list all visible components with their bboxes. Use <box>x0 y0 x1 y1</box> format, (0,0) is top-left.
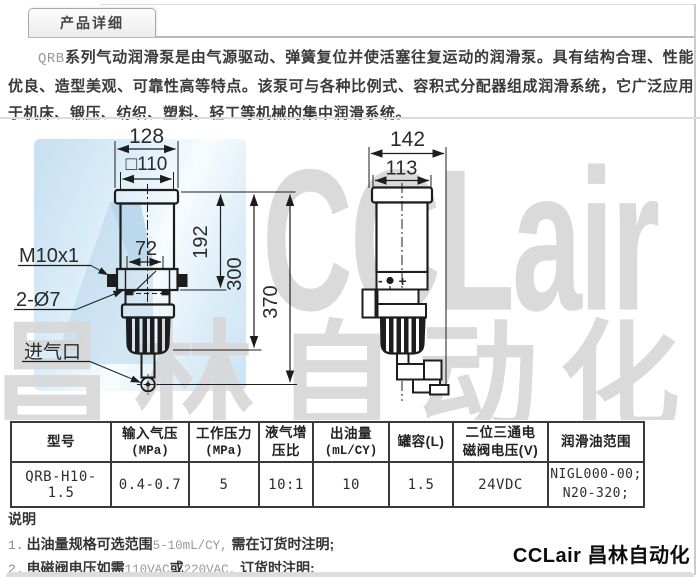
label-holes: 2-Ø7 <box>16 289 60 311</box>
leader-inlet <box>90 362 141 383</box>
dim-300: 300 <box>224 257 246 290</box>
page-top-border <box>100 4 696 5</box>
pump-head <box>127 318 170 354</box>
cell-model: QRB-H10-1.5 <box>11 462 111 507</box>
series-code: QRB <box>38 51 65 67</box>
bracket-tab-right <box>178 275 188 287</box>
technical-drawing-band: CCLair 昌林自动化 <box>0 117 700 420</box>
label-inlet: 进气口 <box>24 341 81 363</box>
product-description: QRB系列气动润滑泵是由气源驱动、弹簧复位并使活塞往复运动的润滑泵。具有结构合理… <box>8 44 694 127</box>
leader-thread <box>91 266 108 276</box>
col-model: 型号 <box>11 422 111 462</box>
leader-holes <box>76 291 123 310</box>
brand-logo-text: CCLair 昌林自动化 <box>513 539 690 568</box>
dim-72: 72 <box>135 238 157 260</box>
cell-valve-voltage: 24VDC <box>453 462 548 507</box>
spec-table: 型号 输入气压(MPa) 工作压力(MPa) 液气增压比 出油量(mL/CY) … <box>10 421 645 508</box>
col-boost-ratio: 液气增压比 <box>259 422 313 462</box>
solenoid-valve-body <box>397 364 424 380</box>
front-cap <box>115 190 178 204</box>
note-item-1: 1.出油量规格可选范围5-10mL/CY, 需在订货时注明; <box>8 533 528 557</box>
tab-product-detail[interactable]: 产品详细 <box>28 8 156 37</box>
front-view-labels: 128 □110 72 192 300 370 M10x1 2-Ø7 进气口 <box>16 125 282 363</box>
solenoid-valve-coil <box>424 361 442 380</box>
cell-oil-output: 10 <box>313 462 389 507</box>
dim-370: 370 <box>260 285 282 318</box>
inlet-tube <box>142 354 155 378</box>
pump-head-ribs <box>128 317 170 354</box>
polarity-plus: + <box>399 273 407 289</box>
col-oil-output: 出油量(mL/CY) <box>313 422 389 462</box>
notes-section: 说明 1.出油量规格可选范围5-10mL/CY, 需在订货时注明; 2.电磁阀电… <box>8 509 528 577</box>
description-text: 系列气动润滑泵是由气源驱动、弹簧复位并使活塞往复运动的润滑泵。具有结构合理、性能… <box>8 49 694 122</box>
spec-table-data-row: QRB-H10-1.5 0.4-0.7 5 10:1 10 1.5 24VDC … <box>11 462 644 507</box>
cell-tank-capacity: 1.5 <box>389 462 453 507</box>
cell-oil-range: NIGL000-00; N20-320; <box>548 462 644 507</box>
tab-label: 产品详细 <box>60 13 124 33</box>
side-plate <box>363 290 376 318</box>
cell-input-pressure: 0.4-0.7 <box>111 462 189 507</box>
cell-working-pressure: 5 <box>189 462 259 507</box>
side-pump-head <box>381 318 425 354</box>
dim-128: 128 <box>129 125 164 148</box>
col-working-pressure: 工作压力(MPa) <box>189 422 259 462</box>
label-thread: M10x1 <box>19 245 79 267</box>
bottom-section-edge <box>6 572 694 577</box>
dim-113: 113 <box>386 158 418 180</box>
col-valve-voltage: 二位三通电磁阀电压(V) <box>453 422 548 462</box>
spec-table-header-row: 型号 输入气压(MPa) 工作压力(MPa) 液气增压比 出油量(mL/CY) … <box>11 422 644 462</box>
col-input-pressure: 输入气压(MPa) <box>111 422 189 462</box>
dim-192: 192 <box>190 225 212 258</box>
polarity-minus: - <box>378 273 383 289</box>
notes-title: 说明 <box>8 509 528 529</box>
bracket-tab-left <box>108 275 118 287</box>
col-oil-range: 润滑油范围 <box>548 422 644 462</box>
cell-boost-ratio: 10:1 <box>259 462 313 507</box>
product-detail-page: 产品详细 QRB系列气动润滑泵是由气源驱动、弹簧复位并使活塞往复运动的润滑泵。具… <box>0 0 700 577</box>
gauge-dot <box>386 277 393 284</box>
dim-142: 142 <box>390 128 425 151</box>
dim-110: □110 <box>126 154 168 175</box>
pump-drawings: 128 □110 72 192 300 370 M10x1 2-Ø7 进气口 <box>0 119 700 420</box>
col-tank-capacity: 罐容(L) <box>389 422 453 462</box>
pump-flange <box>122 305 174 318</box>
